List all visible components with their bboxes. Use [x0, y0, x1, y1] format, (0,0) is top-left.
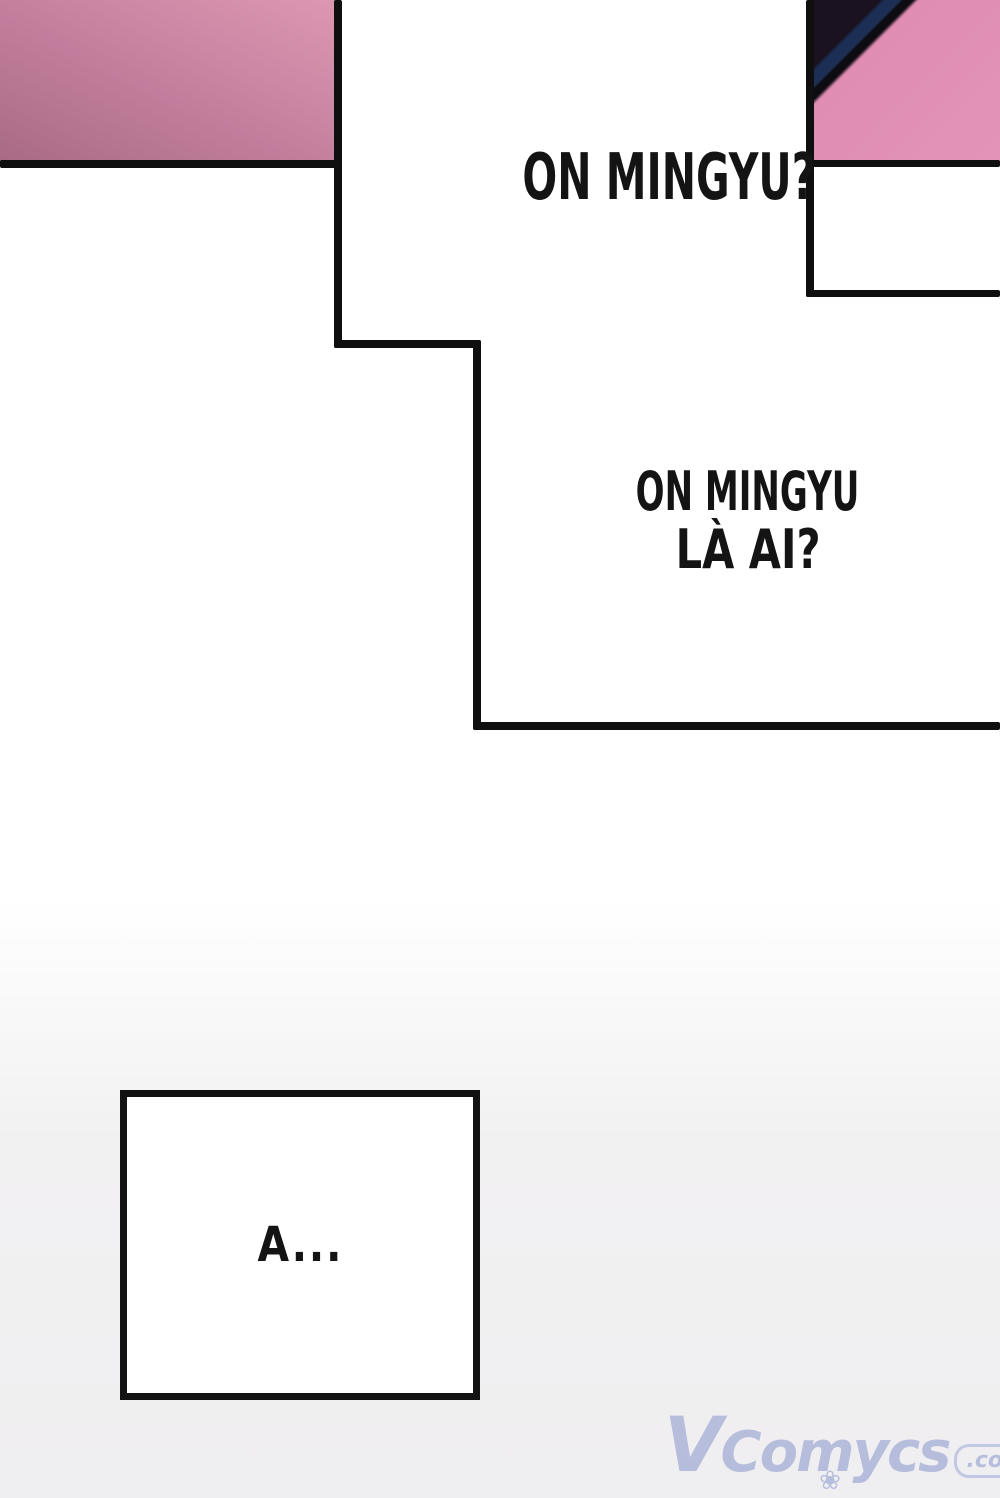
caption-text: A... [257, 1217, 343, 1273]
left-panel-bottom-border [0, 160, 342, 168]
right-panel-caption-area [810, 164, 1000, 294]
right-panel-bottom-border [806, 290, 1000, 297]
speech-bubble-top: ON MINGYU? [440, 146, 712, 210]
caption-text-wrap: A... [250, 1217, 351, 1273]
caption-box: A... [120, 1090, 480, 1400]
flower-ornament-icon: ❀ [819, 1466, 841, 1496]
speech-text-1: ON MINGYU? [522, 146, 815, 210]
bubble-step-border [334, 340, 481, 348]
speech-text-2-line1: ON MINGYU [636, 463, 860, 521]
bubble-bottom-border [473, 722, 1000, 730]
right-artwork-panel [810, 0, 1000, 164]
right-panel-art-bottom-border [806, 160, 1000, 167]
left-artwork-panel [0, 0, 338, 164]
comic-page: ON MINGYU? ON MINGYU LÀ AI? A... VComycs… [0, 0, 1000, 1498]
watermark-brand: VComycs [664, 1406, 949, 1492]
watermark: VComycs .com ❀ [664, 1392, 994, 1492]
bubble-left-border-lower [473, 340, 481, 730]
speech-text-2-line2: LÀ AI? [676, 521, 821, 579]
speech-bubble-middle: ON MINGYU LÀ AI? [560, 463, 936, 579]
bubble-left-border-upper [334, 0, 342, 348]
watermark-suffix: .com [954, 1444, 1000, 1478]
